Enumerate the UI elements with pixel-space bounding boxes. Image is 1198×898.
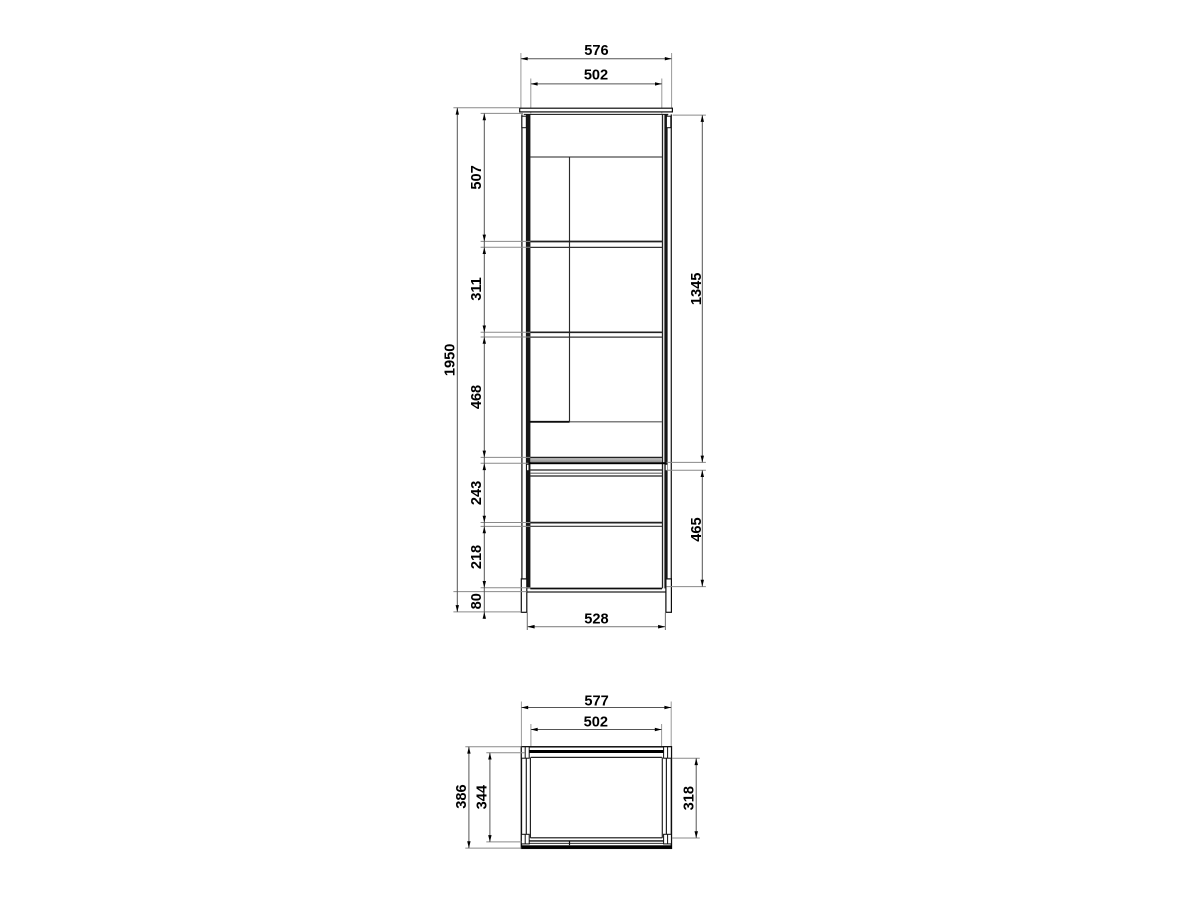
svg-text:577: 577 [584,693,608,709]
svg-text:386: 386 [454,784,470,808]
svg-text:465: 465 [689,517,705,541]
svg-text:218: 218 [469,545,485,569]
svg-text:1345: 1345 [689,273,705,305]
svg-text:1950: 1950 [443,344,459,376]
svg-text:528: 528 [584,611,608,627]
svg-text:507: 507 [469,165,485,189]
svg-text:344: 344 [475,784,491,809]
svg-text:243: 243 [469,481,485,505]
svg-text:80: 80 [469,593,485,609]
svg-text:502: 502 [584,68,608,84]
svg-text:576: 576 [584,43,608,59]
svg-text:502: 502 [584,714,608,730]
svg-text:318: 318 [682,786,698,810]
svg-text:311: 311 [469,277,485,301]
svg-text:468: 468 [469,385,485,409]
